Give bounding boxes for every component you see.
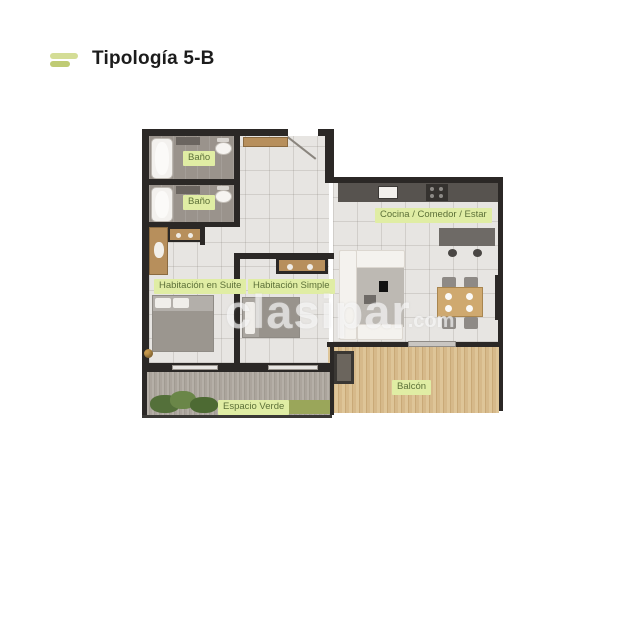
simple-wardrobe	[276, 257, 328, 274]
equals-bars-icon	[50, 50, 80, 68]
kitchen-sink	[378, 186, 398, 199]
page: Tipología 5-B	[0, 0, 640, 637]
wall-bath-right	[234, 136, 240, 227]
wall-right-thick-segment	[495, 275, 503, 320]
accent-bar-bottom	[50, 61, 70, 67]
wall-right-outer	[498, 177, 503, 346]
dining-chair-3	[442, 317, 456, 329]
bathtub-2	[151, 187, 173, 222]
wall-balcony-right	[499, 346, 503, 411]
room-label-cocina: Cocina / Comedor / Estar	[375, 208, 492, 223]
room-label-suite: Habitación en Suite	[154, 279, 246, 294]
island-stool-2	[473, 249, 482, 257]
coffee-table	[364, 295, 376, 304]
room-label-simple: Habitación Simple	[248, 279, 335, 294]
wall-hall-kitchen-upper	[325, 129, 334, 183]
dining-table	[437, 287, 483, 317]
floor-plan: Baño Baño Habitación en Suite Habitación…	[142, 123, 504, 419]
page-header: Tipología 5-B	[50, 48, 215, 70]
wall-left-lower	[142, 372, 147, 418]
bathtub-1	[151, 138, 173, 179]
room-label-balcon: Balcón	[392, 380, 431, 395]
room-label-bano-1: Baño	[183, 151, 215, 166]
green-space-bottom-edge	[142, 415, 332, 418]
stove	[426, 184, 448, 201]
island-stool-1	[448, 249, 457, 257]
room-label-verde: Espacio Verde	[218, 400, 289, 415]
wall-bath-divider	[149, 179, 240, 185]
accent-bar-top	[50, 53, 78, 59]
simple-bed	[242, 297, 300, 338]
kitchen-island	[439, 228, 495, 246]
sofa-chaise	[339, 250, 357, 340]
balcony-planter	[334, 351, 354, 384]
sliding-door-balcony	[408, 341, 456, 347]
vanity-2	[176, 186, 200, 194]
page-title: Tipología 5-B	[92, 48, 215, 70]
dining-chair-4	[464, 317, 478, 329]
wall-top-left	[142, 129, 288, 136]
wall-left-outer	[142, 129, 149, 372]
kitchen-counter	[338, 183, 498, 202]
closet-cabinet	[149, 227, 168, 275]
window-suite	[172, 365, 218, 370]
suite-lamp	[144, 349, 153, 358]
window-simple	[268, 365, 318, 370]
toilet-2	[215, 190, 232, 203]
room-label-bano-2: Baño	[183, 195, 215, 210]
toilet-1	[215, 142, 232, 155]
tv-unit	[379, 281, 388, 292]
sofa-seat	[357, 324, 403, 340]
vanity-1	[176, 137, 200, 145]
closet-shelf	[168, 227, 202, 242]
suite-bed	[152, 295, 214, 352]
entry-console	[243, 137, 288, 147]
wall-suite-simple-divider	[234, 253, 240, 363]
